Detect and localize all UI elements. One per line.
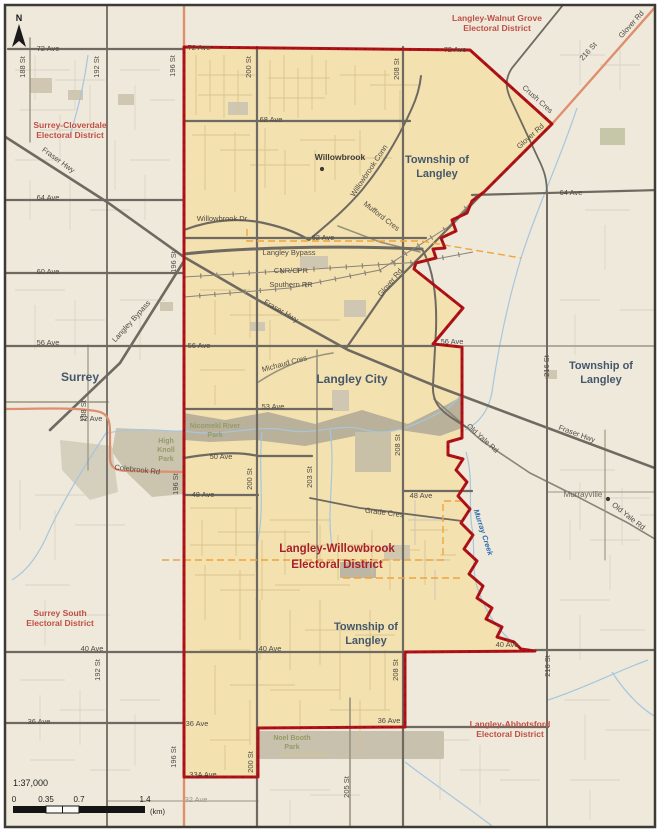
map-label-tol-east-1: Township of — [569, 360, 633, 372]
map-label-sc-district-2: Electoral District — [36, 130, 104, 140]
map-label-64-ave-e: 64 Ave — [560, 188, 583, 197]
scale-ratio: 1:37,000 — [13, 778, 48, 788]
map-label-60-ave: 60 Ave — [37, 267, 60, 276]
map-label-196-st-bot: 196 St — [169, 745, 178, 768]
map-label-40-ave-w: 40 Ave — [81, 644, 104, 653]
map-label-lw-district-2: Electoral District — [291, 559, 383, 571]
map-label-48-ave-w: 48 Ave — [192, 490, 215, 499]
map-label-36-ave-m: 36 Ave — [186, 719, 209, 728]
map-label-ss-district-1: Surrey South — [33, 608, 86, 618]
map-label-64-ave-w: 64 Ave — [37, 193, 60, 202]
murrayville-dot — [606, 497, 610, 501]
map-label-lwg-district-2: Electoral District — [463, 23, 531, 33]
map-svg: 72 Ave72 Ave72 Ave188 St192 St196 St200 … — [0, 0, 660, 832]
map-label-48-ave-e: 48 Ave — [410, 491, 433, 500]
map-label-40-ave-m: 40 Ave — [259, 644, 282, 653]
map-label-willowbrook-dr: Willowbrook Dr — [197, 214, 248, 223]
map-label-216-st-low: 216 St — [543, 654, 552, 677]
map-label-200-st-mid: 200 St — [245, 467, 254, 490]
map-label-33a-ave: 33A Ave — [189, 770, 216, 779]
map-label-nicomekl-park-2: Park — [207, 432, 222, 439]
map-label-ss-district-2: Electoral District — [26, 618, 94, 628]
scale-tick-3: 1.4 — [139, 795, 151, 804]
map-label-tol-south-2: Langley — [345, 635, 387, 647]
map-label-high-knoll-2: Knoll — [157, 447, 175, 454]
map-label-196-st-top: 196 St — [168, 54, 177, 77]
map-label-langley-city: Langley City — [316, 372, 388, 386]
scale-segment-1 — [13, 806, 46, 813]
map-label-la-district-1: Langley-Abbotsford — [470, 719, 551, 729]
map-label-208-st-top: 208 St — [392, 57, 401, 80]
scale-unit: (km) — [150, 807, 165, 816]
map-label-langley-bypass-h: Langley Bypass — [263, 248, 316, 257]
map-label-192-st-top: 192 St — [92, 55, 101, 78]
map-label-208-st-mid: 208 St — [393, 433, 402, 456]
map-label-72-ave-e: 72 Ave — [444, 45, 467, 54]
map-label-cnr-cpr: CNR/CPR — [274, 266, 309, 275]
map-label-southern-rr: Southern RR — [269, 280, 313, 289]
map-label-200-st-bot: 200 St — [246, 750, 255, 773]
map-label-203-st: 203 St — [305, 465, 314, 488]
map-label-53-ave: 53 Ave — [262, 402, 285, 411]
map-label-200-st-top: 200 St — [244, 55, 253, 78]
map-label-72-ave-m: 72 Ave — [188, 43, 211, 52]
map-content: 72 Ave72 Ave72 Ave188 St192 St196 St200 … — [0, 0, 660, 832]
map-label-la-district-2: Electoral District — [476, 729, 544, 739]
scale-segment-3 — [79, 806, 145, 813]
map-label-216-st-mid: 216 St — [542, 354, 551, 377]
scale-tick-0: 0 — [12, 795, 17, 804]
map-label-205-st: 205 St — [342, 775, 351, 798]
map-label-tol-north-1: Township of — [405, 154, 469, 166]
map-label-noel-booth-1: Noel Booth — [273, 735, 310, 742]
map-label-36-ave-e: 36 Ave — [378, 716, 401, 725]
map-label-surrey: Surrey — [61, 370, 99, 384]
map-label-noel-booth-2: Park — [284, 744, 299, 751]
map-label-murrayville: Murrayville — [564, 490, 603, 499]
map-label-56-ave-e: 56 Ave — [441, 337, 464, 346]
map-label-lw-district-1: Langley-Willowbrook — [279, 543, 395, 555]
map-label-56-ave-w: 56 Ave — [37, 338, 60, 347]
map-label-68-ave: 68 Ave — [260, 115, 283, 124]
map-label-62-ave: 62 Ave — [312, 233, 335, 242]
map-label-40-ave-e: 40 Ave — [496, 640, 519, 649]
map-label-56-ave-m: 56 Ave — [188, 341, 211, 350]
map-label-tol-south-1: Township of — [334, 621, 398, 633]
map-label-sc-district-1: Surrey-Cloverdale — [33, 120, 106, 130]
map-label-lwg-district-1: Langley-Walnut Grove — [452, 13, 542, 23]
map-label-208-st-low: 208 St — [391, 658, 400, 681]
map-label-72-ave-w: 72 Ave — [37, 44, 60, 53]
map-label-192-st-low: 192 St — [93, 658, 102, 681]
map-label-willowbrook: Willowbrook — [315, 152, 366, 162]
map-label-188-st-top: 188 St — [18, 55, 27, 78]
electoral-district-map: 72 Ave72 Ave72 Ave188 St192 St196 St200 … — [0, 0, 660, 832]
map-label-36-ave-w: 36 Ave — [28, 717, 51, 726]
map-label-196-st-low: 196 St — [171, 472, 180, 495]
map-label-nicomekl-park-1: Nicomekl River — [190, 423, 241, 430]
map-label-196-st-mid: 196 St — [169, 250, 178, 273]
scale-tick-1: 0.35 — [38, 795, 54, 804]
scale-tick-2: 0.7 — [73, 795, 85, 804]
map-label-tol-east-2: Langley — [580, 374, 622, 386]
map-label-high-knoll-3: Park — [158, 456, 173, 463]
map-label-32-ave: 32 Ave — [185, 795, 208, 804]
map-label-high-knoll-1: High — [158, 438, 174, 445]
map-label-50-ave: 50 Ave — [210, 452, 233, 461]
map-label-188-st-mid: 188 St — [79, 399, 88, 422]
map-label-tol-north-2: Langley — [416, 168, 458, 180]
north-label: N — [16, 13, 23, 23]
willowbrook-dot — [320, 167, 324, 171]
